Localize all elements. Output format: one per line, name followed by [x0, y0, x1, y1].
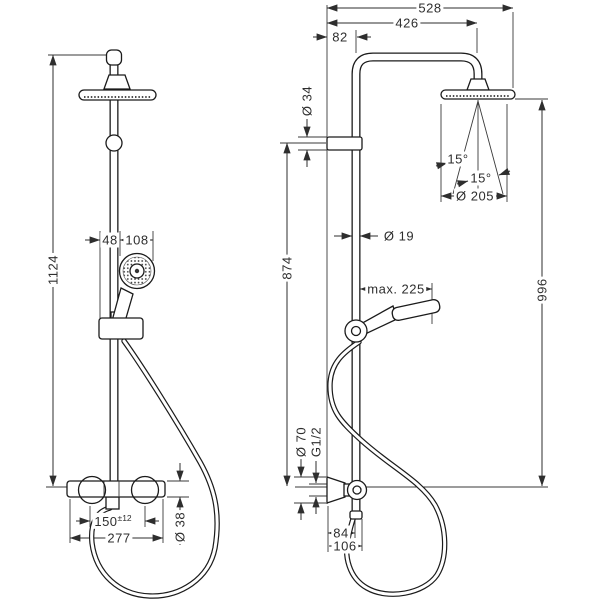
hose-connector — [350, 511, 362, 519]
dim-label-valve-width: 277 — [105, 531, 132, 546]
dim-label-head-reach: 426 — [393, 16, 420, 31]
dim-label-valve-dia: Ø 38 — [173, 510, 188, 544]
dim-label-pipe-dia: Ø 19 — [382, 229, 416, 244]
handshower-head-side — [391, 299, 441, 322]
dim-label-bar-height: 874 — [280, 254, 295, 281]
dim-label-spray-angle-right: 15° — [468, 171, 493, 186]
pipe-top-cap — [107, 50, 122, 65]
valve-centers-tolerance: ±12 — [118, 513, 132, 523]
slider-holder-pivot — [352, 327, 361, 336]
valve-centers-value: 150 — [94, 514, 117, 529]
outlet-joint-center — [353, 486, 361, 494]
dim-label-hand-width: 108 — [123, 233, 150, 248]
dim-label-bracket-dia: Ø 34 — [300, 84, 315, 118]
side-view — [327, 57, 515, 594]
wall-bracket — [327, 137, 362, 150]
head-cone-side — [467, 79, 489, 90]
overhead-shower-disc-front — [79, 90, 156, 100]
side-view-dimension-lines — [280, 5, 548, 552]
dim-label-head-height: 996 — [535, 276, 550, 303]
technical-drawing-canvas: 1124 48 108 150±12 277 Ø 38 528 426 82 Ø… — [0, 0, 600, 600]
handshower-button — [135, 269, 139, 273]
overhead-shower-disc-side — [441, 90, 515, 99]
dim-label-head-dia: Ø 205 — [454, 189, 496, 204]
dim-label-height: 1124 — [46, 253, 61, 287]
dim-label-hose-offset: 106 — [331, 539, 358, 554]
dim-label-hand-offset: 48 — [100, 233, 119, 248]
slider-holder-front — [99, 318, 143, 339]
wall-escutcheon — [327, 477, 345, 503]
front-view — [67, 50, 217, 596]
dim-label-wall-offset: 82 — [330, 30, 349, 45]
dim-label-hand-reach: max. 225 — [365, 282, 426, 297]
valve-outlet-stub — [106, 497, 119, 509]
dim-label-thread: G1/2 — [309, 425, 324, 459]
head-cone-front — [104, 75, 130, 89]
dim-label-valve-centers: 150±12 — [92, 513, 133, 529]
dim-label-spray-angle-left: 15° — [445, 152, 470, 167]
dim-label-escutcheon-dia: Ø 70 — [294, 425, 309, 459]
pipe-joint-front — [106, 135, 122, 151]
dim-label-total-depth: 528 — [416, 1, 443, 16]
thermostat-body — [67, 481, 165, 497]
